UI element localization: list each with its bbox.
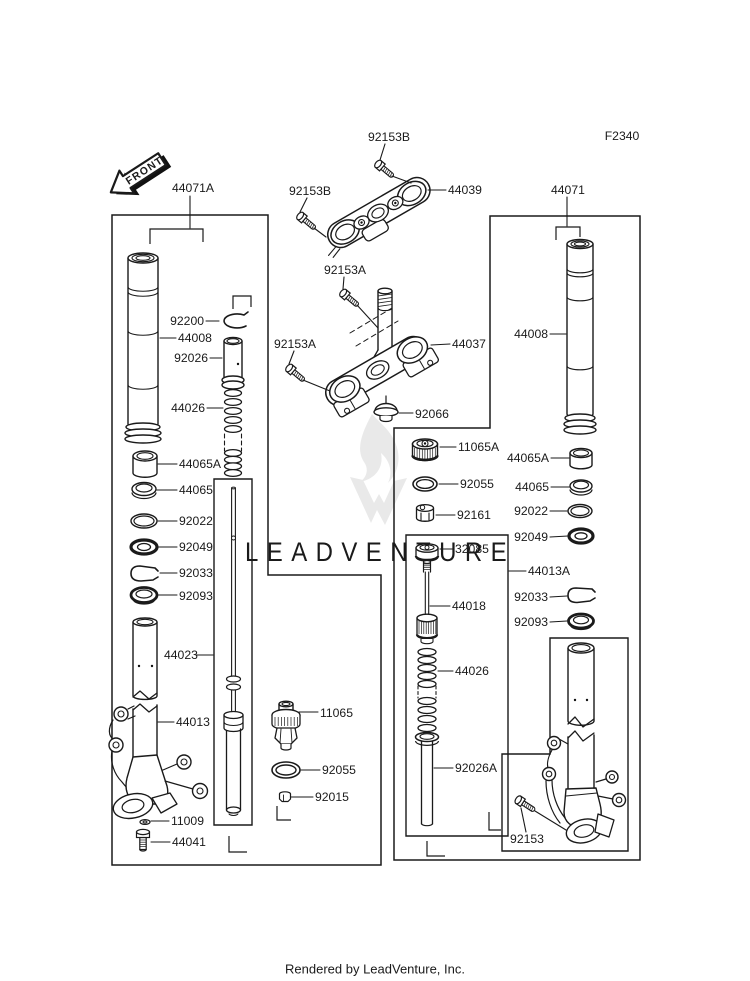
diagram-shape [418,681,436,688]
leader-line [431,344,450,345]
steering-stem-top [378,288,392,294]
diagram-shape [136,590,152,598]
part-label-44013: 44013 [158,715,210,729]
diagram-shape [418,707,436,714]
part-number: 92022 [514,504,548,518]
diagram-shape [114,707,128,721]
leader-line [521,808,526,832]
diagram-shape [193,784,208,799]
part-label-92049-left: 92049 [158,540,213,554]
diagram-shape [586,699,588,701]
part-label-44041: 44041 [151,835,206,849]
parts-diagram: LEADVENTUREF234092153B92153B4403944071A4… [0,0,750,981]
part-number: 44008 [514,327,548,341]
part-number: 44039 [448,183,482,197]
diagram-shape [225,426,242,433]
diagram-shape [606,771,618,783]
part-number: 44018 [452,599,486,613]
watermark-flame-icon [360,414,399,483]
part-label-44071: 44071 [551,183,585,226]
damper-rod-box [214,479,252,825]
parts-diagram-page: LEADVENTUREF234092153B92153B4403944071A4… [0,0,750,981]
part-label-92055-mid: 92055 [301,763,356,777]
part-number: 92015 [315,790,349,804]
diagram-shape [418,657,436,664]
leader-line [303,380,330,391]
diagram-shape [225,450,242,457]
part-label-44026-left: 44026 [171,401,223,415]
diagram-shape [421,639,433,644]
part-label-44008-right: 44008 [514,327,566,341]
part-label-92026A: 92026A [434,761,498,775]
part-label-44065A-left: 44065A [158,457,222,471]
diagram-shape [177,755,191,769]
part-label-44065A-right: 44065A [507,451,569,465]
part-label-44018: 44018 [430,599,486,613]
diagram-shape [417,614,437,622]
oil-seal-92049-left [131,540,157,554]
diagram-shape [418,673,436,680]
bushing-44065A-right [570,449,592,469]
part-number: 44013A [528,564,571,578]
diagram-shape [574,699,576,701]
part-label-44037: 44037 [431,337,486,351]
part-label-figure-code: F2340 [605,129,640,143]
part-label-44065-left: 44065 [157,483,213,497]
diagram-shape [225,417,242,424]
part-number: 44037 [452,337,486,351]
diagram-shape [140,838,146,850]
diagram-shape [138,544,151,551]
bracket [489,812,501,830]
leader-line [357,305,378,328]
part-number: 44026 [455,664,489,678]
clip-92033-right [568,588,595,603]
clip-92033-left [131,566,158,581]
part-number: 11065 [320,706,353,720]
bracket [277,806,291,820]
part-label-11009: 11009 [151,814,204,828]
part-number: 92049 [179,540,213,554]
coil-spring [225,450,242,477]
part-label-92093-left: 92093 [158,589,213,603]
part-label-44008-left: 44008 [160,331,212,345]
part-label-92066: 92066 [399,407,449,421]
diagram-shape [133,704,157,712]
part-number: 92153B [368,130,410,144]
part-number: 92055 [460,477,494,491]
diagram-shape [567,244,593,418]
bracket [233,296,251,309]
diagram-shape [378,294,392,307]
part-label-92055-right: 92055 [439,477,494,491]
part-label-92033-right: 92033 [514,590,567,604]
damper-rod-44023 [224,712,243,719]
diagram-shape [417,480,434,489]
diagram-shape [272,715,300,730]
coil-spring [418,698,436,732]
washer-11009 [140,820,150,825]
part-label-92022-right: 92022 [514,504,567,518]
diagram-shape [227,684,241,690]
part-label-92015: 92015 [291,790,349,804]
diagram-shape [275,728,297,744]
part-label-44013A: 44013A [509,564,571,578]
diagram-shape [575,533,587,539]
diagram-shape [418,725,436,732]
diagram-shape [227,676,241,682]
part-number: 92093 [179,589,213,603]
part-label-92093-right: 92093 [514,615,567,629]
fork-inner-tube-right-44008 [564,240,596,435]
diagram-shape [222,381,244,389]
diagram-shape [418,716,436,723]
diagram-shape [237,363,239,365]
diagram-shape [281,744,291,750]
diagram-shape [571,507,589,516]
part-number: 11065A [458,440,500,454]
leader-line [392,176,411,183]
part-label-92033-left: 92033 [160,566,213,580]
part-number: 92153 [510,832,544,846]
diagram-shape [137,829,150,834]
part-number: 92026 [174,351,208,365]
part-number: 44008 [178,331,212,345]
diagram-shape [232,487,236,489]
part-number: 92049 [514,530,548,544]
part-label-44065-right: 44065 [515,480,569,494]
leader-line [550,621,567,622]
fork-outer-tube-right [568,643,594,725]
diagram-shape [225,390,242,397]
diagram-shape [109,738,123,752]
part-number: 92093 [514,615,548,629]
bolt-92153 [514,795,537,814]
part-number: 92066 [415,407,449,421]
diagram-shape [134,516,154,526]
spring-44026-left [225,390,242,433]
part-label-92049-right: 92049 [514,530,568,544]
diagram-shape [128,706,135,719]
part-number: 92033 [179,566,213,580]
part-number: 92055 [322,763,356,777]
front-direction-arrow: FRONT [103,146,174,208]
diagram-shape [224,341,242,380]
spring-44026-right [418,649,436,688]
diagram-shape [422,824,433,826]
part-number: 92033 [514,590,548,604]
part-label-92153A-right: 92153A [324,263,378,328]
bracket [427,841,445,856]
leader-line [380,144,385,160]
fork-inner-tube-left-44008 [125,253,161,443]
diagram-shape [151,665,153,667]
part-number: 44065A [179,457,222,471]
leader-line [343,277,344,289]
oil-seal-92049-right [569,529,593,543]
diagram-shape [374,408,398,416]
part-number: 92200 [170,314,204,328]
leader-line [550,536,568,537]
part-number: F2340 [605,129,640,143]
footer-credit: Rendered by LeadVenture, Inc. [285,962,465,977]
leader-line [314,228,326,237]
part-number: 92026A [455,761,498,775]
watermark-v-icon [350,477,407,525]
part-number: 44065 [515,480,549,494]
diagram-shape [128,258,158,428]
part-number: 44026 [171,401,205,415]
diagram-shape [418,665,436,672]
leader-line [289,351,294,364]
diagram-shape [380,416,392,422]
diagram-shape [613,794,626,807]
diagram-shape [225,408,242,415]
diagram-shape [564,426,596,434]
diagram-shape [574,616,589,624]
part-label-92161: 92161 [436,508,491,522]
bracket [150,229,203,244]
part-label-92153A-left: 92153A [274,337,330,391]
leader-line [300,198,307,212]
part-number: 92153A [274,337,317,351]
diagram-shape [595,814,614,837]
part-number: 44013 [176,715,210,729]
diagram-shape [280,794,291,802]
part-number: 44065 [179,483,213,497]
diagram-shape [225,456,242,463]
diagram-shape [546,780,565,823]
diagram-shape [568,731,594,741]
part-number: 92161 [457,508,491,522]
part-label-11065: 11065 [299,706,353,720]
part-label-92153: 92153 [510,808,566,846]
part-number: 11009 [171,814,204,828]
diagram-shape [227,807,241,813]
part-number: 44071A [172,181,215,195]
fork-outer-tube-left-44013 [133,618,157,699]
part-label-44039: 44039 [428,183,482,197]
part-number: 92153B [289,184,331,198]
part-number: 44023 [164,648,198,662]
diagram-shape [229,814,238,816]
part-label-92022-left: 92022 [158,514,213,528]
push-rod-44018 [424,561,431,564]
part-number: 44065A [507,451,550,465]
part-label-44026-right: 44026 [438,664,489,678]
diagram-shape [276,765,296,775]
diagram-shape [543,768,556,781]
bushing-44065A-left [133,451,157,477]
diagram-shape [225,463,242,470]
diagram-shape [418,649,436,656]
diagram-shape [418,698,436,705]
leader-line [550,596,567,597]
top-triple-clamp-44039 [316,173,438,263]
bracket [229,836,247,852]
part-label-44071A: 44071A [172,181,215,228]
diagram-shape [133,622,157,699]
part-label-92200: 92200 [170,314,219,328]
part-number: 44071 [551,183,585,197]
diagram-shape [225,470,242,477]
part-number: 32085 [455,542,489,556]
part-number: 92022 [179,514,213,528]
part-number: 44041 [172,835,206,849]
diagram-shape [424,442,426,444]
ring-92200 [224,312,248,328]
part-label-92026: 92026 [174,351,222,365]
diagram-shape [568,648,594,725]
diagram-shape [125,435,161,443]
holder-92026 [222,338,244,390]
diagram-shape [225,399,242,406]
part-number: 92153A [324,263,367,277]
part-label-11065A: 11065A [440,440,500,454]
diagram-shape [138,665,140,667]
bracket [556,227,580,240]
diagram-shape [548,737,561,750]
part-label-44023: 44023 [164,648,213,662]
part-label-92153B-left: 92153B [289,184,331,237]
diagram-shape [232,536,236,540]
